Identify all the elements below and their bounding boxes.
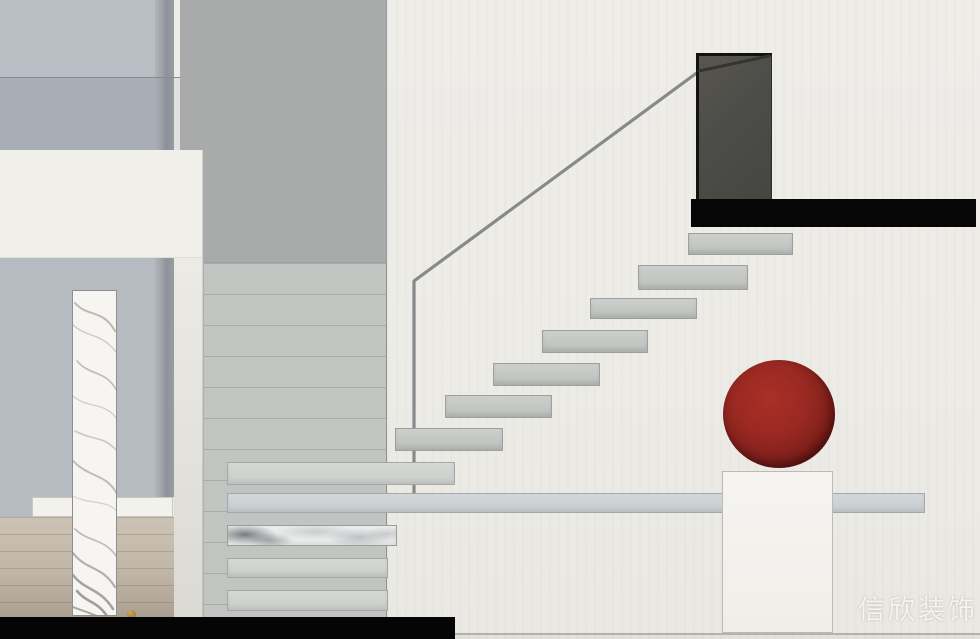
- sculpture-pedestal: [722, 471, 833, 633]
- white-header-beam: [0, 150, 203, 258]
- dark-door-panel: [696, 53, 772, 199]
- floating-tread: [590, 298, 697, 319]
- glass-balustrade-outline: [0, 77, 193, 150]
- floating-tread: [445, 395, 552, 418]
- stair-beam: [227, 558, 388, 578]
- staircase-elevation-rendering: 信欣装饰: [0, 0, 980, 639]
- floor-shadow: [455, 635, 980, 639]
- floating-tread: [395, 428, 503, 451]
- stair-beam: [227, 462, 455, 485]
- upper-gray-wall: [180, 0, 387, 262]
- black-landing-beam: [691, 199, 976, 227]
- stair-beam: [227, 590, 388, 611]
- floating-tread: [688, 233, 793, 255]
- watermark-text: 信欣装饰: [858, 588, 978, 627]
- wall-panel-blue-upper: [0, 0, 155, 77]
- black-floor-bar: [0, 617, 455, 639]
- marble-vein-texture: [73, 291, 117, 616]
- floating-tread: [638, 265, 748, 290]
- marble-beam: [227, 525, 397, 546]
- floating-tread: [493, 363, 600, 386]
- white-door-jamb: [174, 258, 203, 619]
- red-sphere-sculpture: [723, 360, 835, 468]
- marble-column: [72, 290, 117, 616]
- floating-tread: [542, 330, 648, 353]
